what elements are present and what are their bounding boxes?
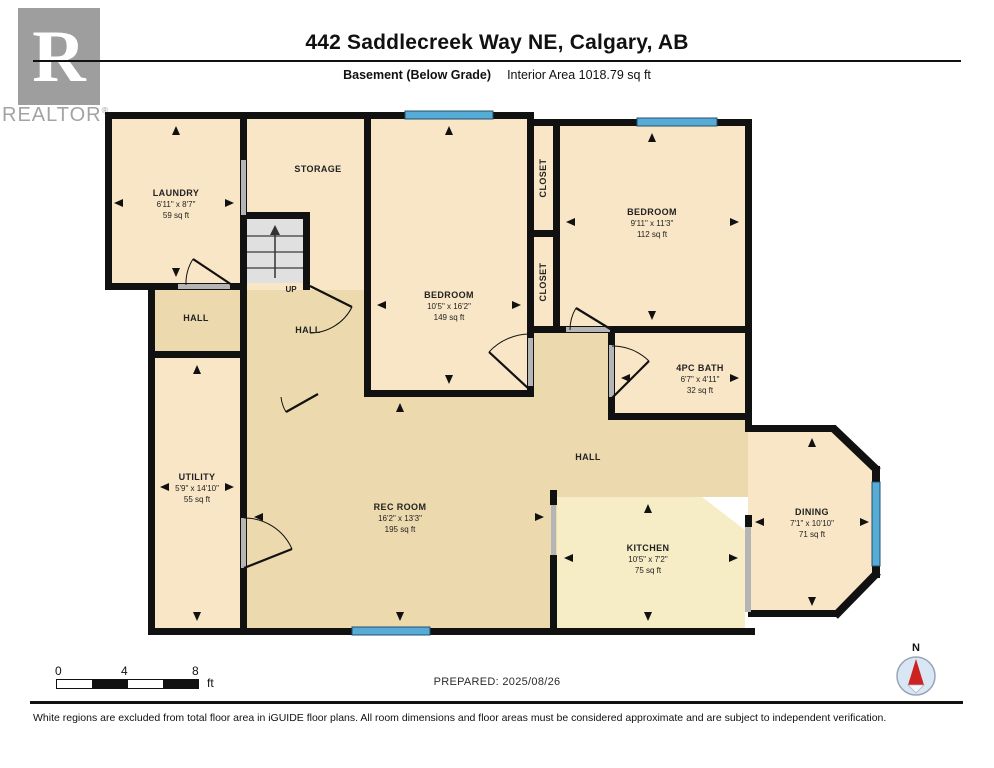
door-opening [241,160,246,215]
bedroom-right-dims: 9'11" x 11'3" [631,219,674,228]
laundry-dims: 6'11" x 8'7" [157,200,196,209]
wall [148,283,155,635]
laundry-name: LAUNDRY [153,188,199,198]
door-opening [528,338,533,386]
window [872,482,880,566]
door-opening [566,327,610,332]
laundry-area: 59 sq ft [163,211,190,220]
wall [105,112,112,290]
wall [240,112,247,358]
stairs-up-label: UP [285,285,297,294]
room-rec-room [240,390,557,635]
dining-name: DINING [795,507,829,517]
wall [148,628,755,635]
compass-n-label: N [912,642,920,654]
dining-dims: 7'1" x 10'10" [790,519,834,528]
compass: N [889,638,943,700]
rec-room-area: 195 sq ft [385,525,416,534]
closet-lower-name: CLOSET [538,262,548,301]
utility-name: UTILITY [179,472,216,482]
room-hall-center [240,283,371,397]
footer-divider-line [30,701,963,704]
floorplan-page: 442 Saddlecreek Way NE, Calgary, AB Base… [0,0,994,768]
bath-area: 32 sq ft [687,386,714,395]
bedroom-right-area: 112 sq ft [637,230,668,239]
window [352,627,430,635]
closet-upper-name: CLOSET [538,158,548,197]
door-opening [241,518,246,568]
wall [748,610,838,617]
wall [148,351,247,358]
room-bedroom-middle [364,112,534,397]
storage-name: STORAGE [294,164,341,174]
window [637,118,717,126]
door-opening [609,345,614,397]
bedroom-middle-area: 149 sq ft [434,313,465,322]
wall [240,212,310,219]
wall [527,230,560,237]
sliding-door [745,527,751,612]
hall-main-name: HALL [575,452,601,462]
wall [608,413,752,420]
kitchen-name: KITCHEN [627,543,670,553]
dining-area: 71 sq ft [799,530,826,539]
wall [105,112,371,119]
wall [240,358,247,635]
bedroom-right-name: BEDROOM [627,207,677,217]
wall [550,555,557,635]
hall-center-name: HALL [295,325,321,335]
bath-dims: 6'7" x 4'11" [681,375,720,384]
bedroom-middle-dims: 10'5" x 16'2" [427,302,471,311]
door-opening [551,505,556,555]
utility-area: 55 sq ft [184,495,211,504]
kitchen-area: 75 sq ft [635,566,662,575]
kitchen-dims: 10'5" x 7'2" [628,555,668,564]
bedroom-middle-name: BEDROOM [424,290,474,300]
wall [872,466,880,484]
wall [303,212,310,290]
wall [553,119,560,333]
rec-room-name: REC ROOM [374,502,427,512]
wall [550,490,557,505]
rec-room-dims: 16'2" x 13'3" [378,514,422,523]
wall [748,425,836,432]
wall [745,515,752,527]
utility-dims: 5'9" x 14'10" [175,484,219,493]
prepared-text: PREPARED: 2025/08/26 [0,676,994,688]
wall [364,112,371,397]
bath-name: 4PC BATH [676,363,724,373]
wall [364,390,534,397]
floorplan-drawing: LAUNDRY 6'11" x 8'7" 59 sq ft STORAGE CL… [0,0,994,768]
wall [745,119,752,432]
hall-left-name: HALL [183,313,209,323]
window [405,111,493,119]
disclaimer-text: White regions are excluded from total fl… [33,712,973,724]
